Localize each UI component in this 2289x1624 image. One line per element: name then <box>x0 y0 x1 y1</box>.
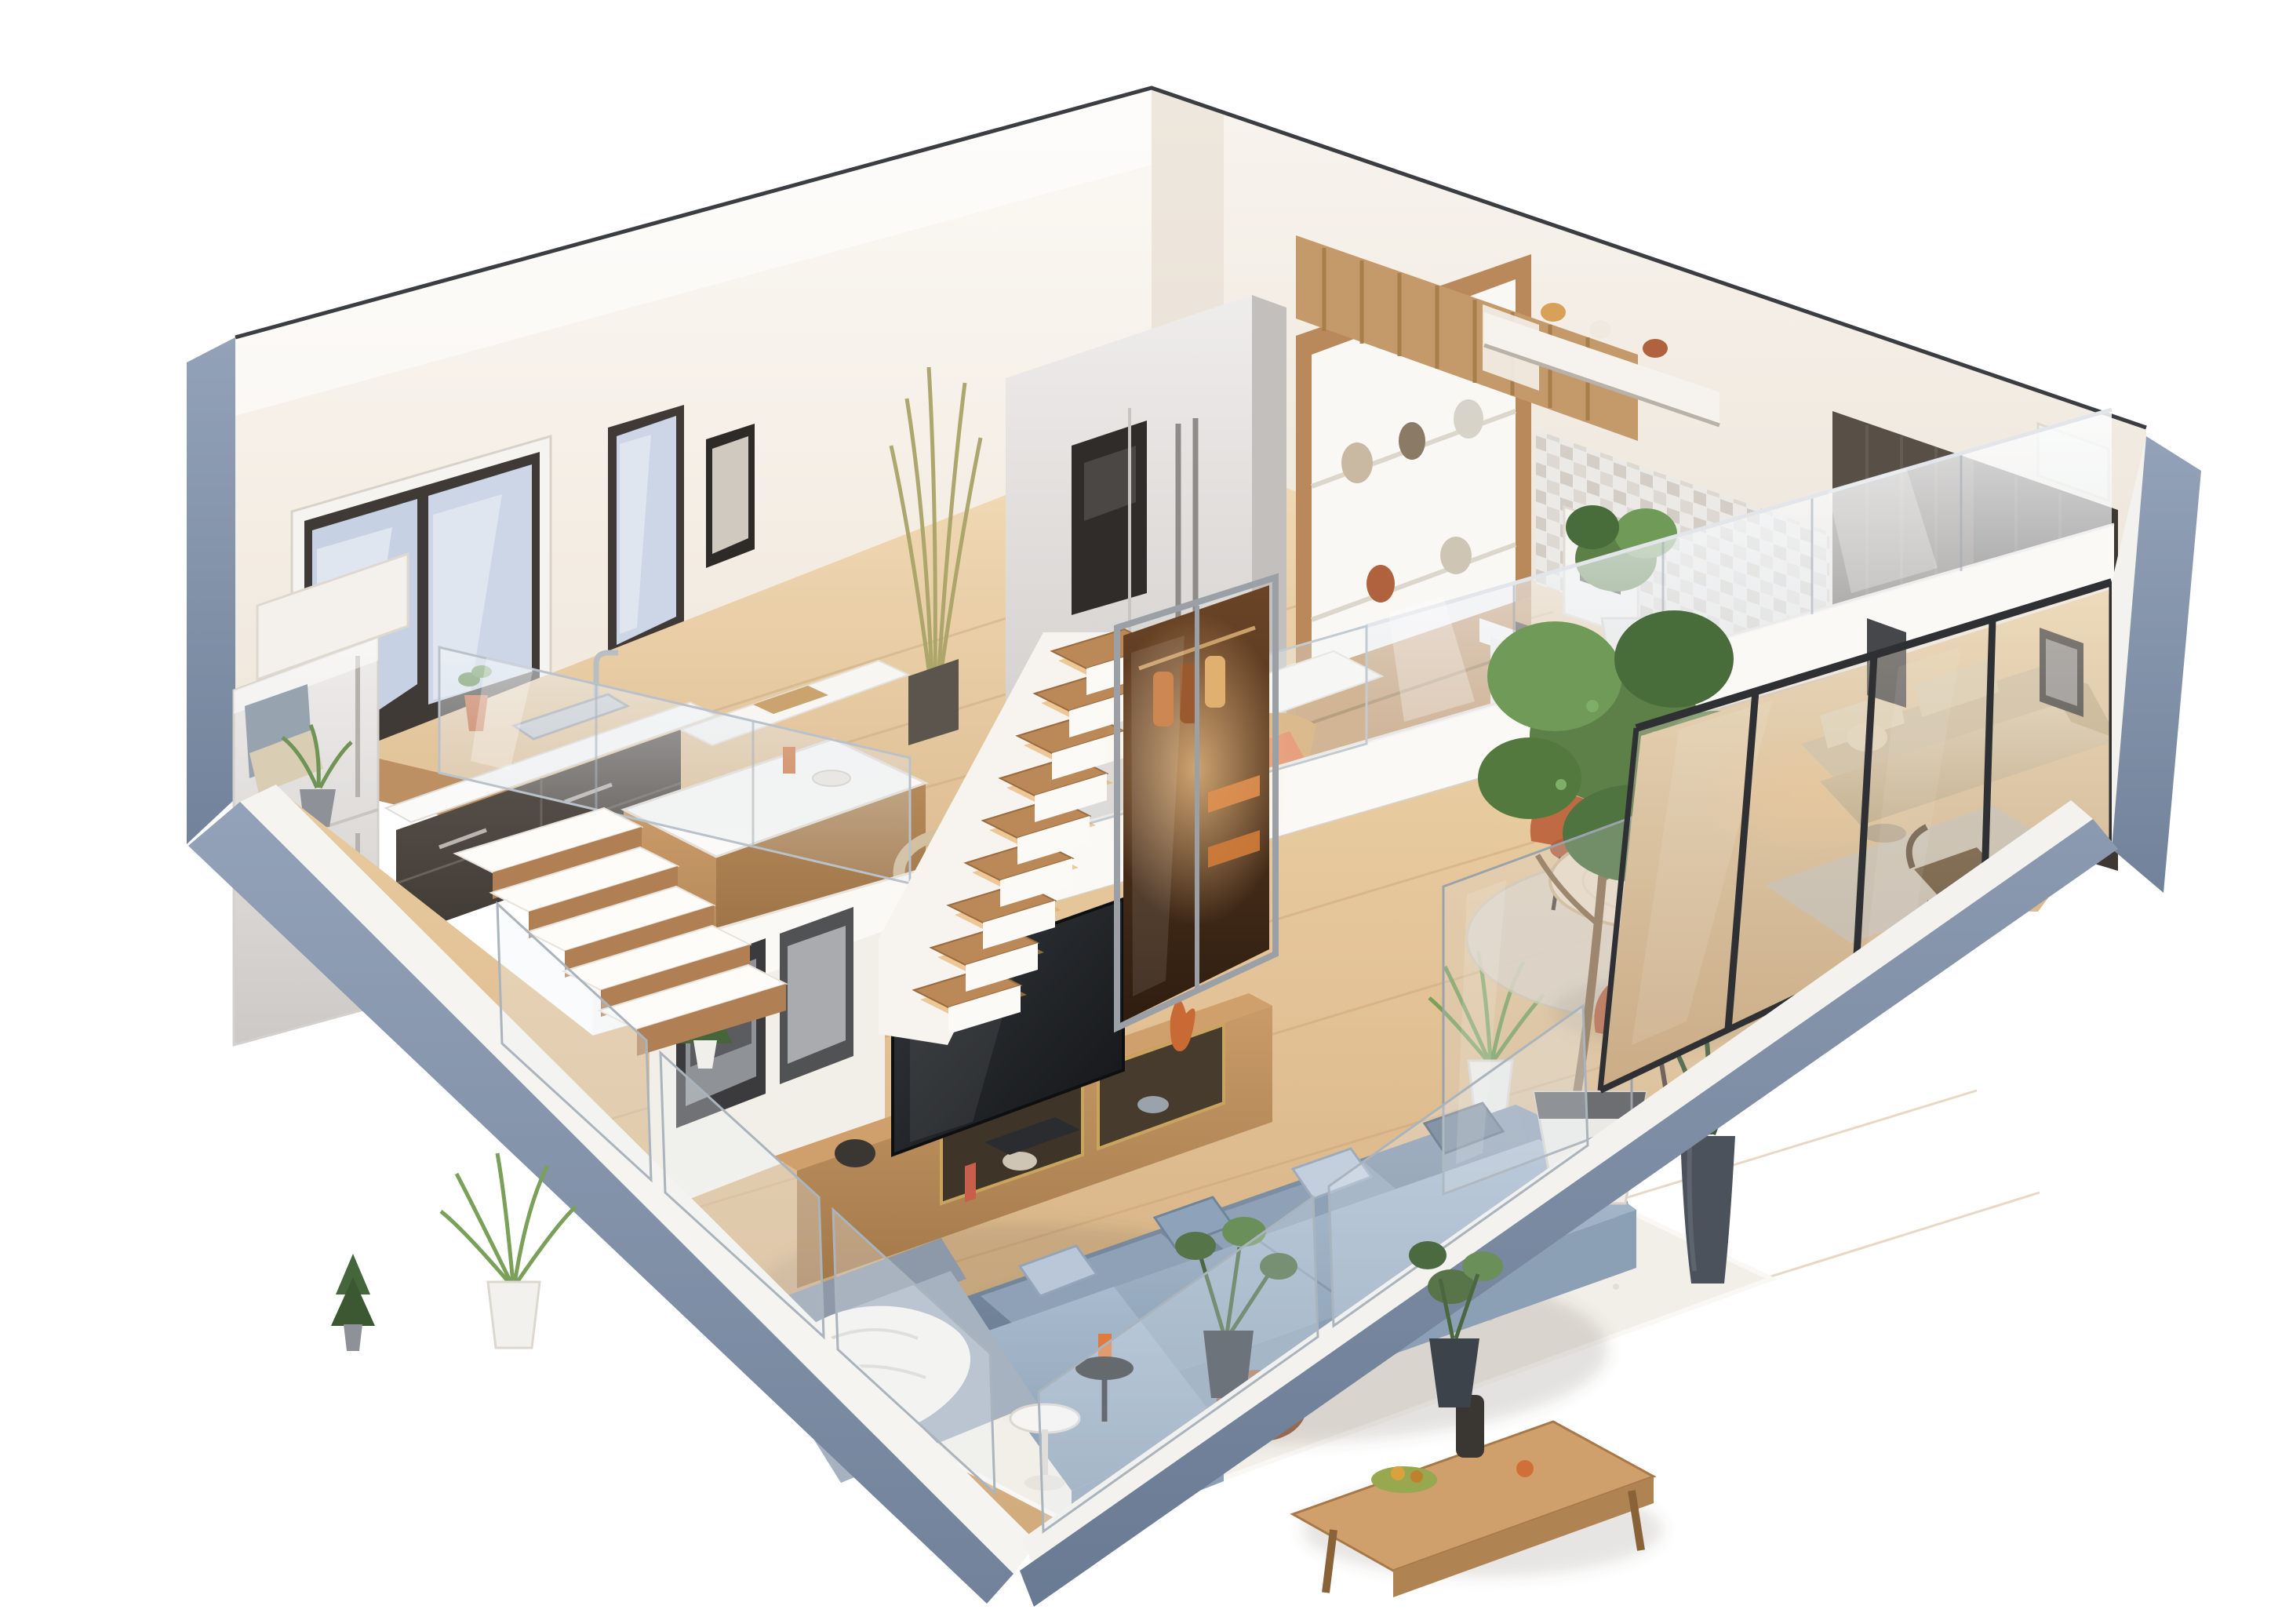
isometric-floorplan-scene <box>0 0 2289 1624</box>
small-conifer <box>331 1254 375 1351</box>
sliding-door-closet <box>1101 577 1290 1028</box>
left-wall-cut-face <box>187 337 235 844</box>
floorplan-render <box>0 0 2289 1624</box>
narrow-window <box>608 405 684 657</box>
wall-art-frame <box>706 424 755 568</box>
